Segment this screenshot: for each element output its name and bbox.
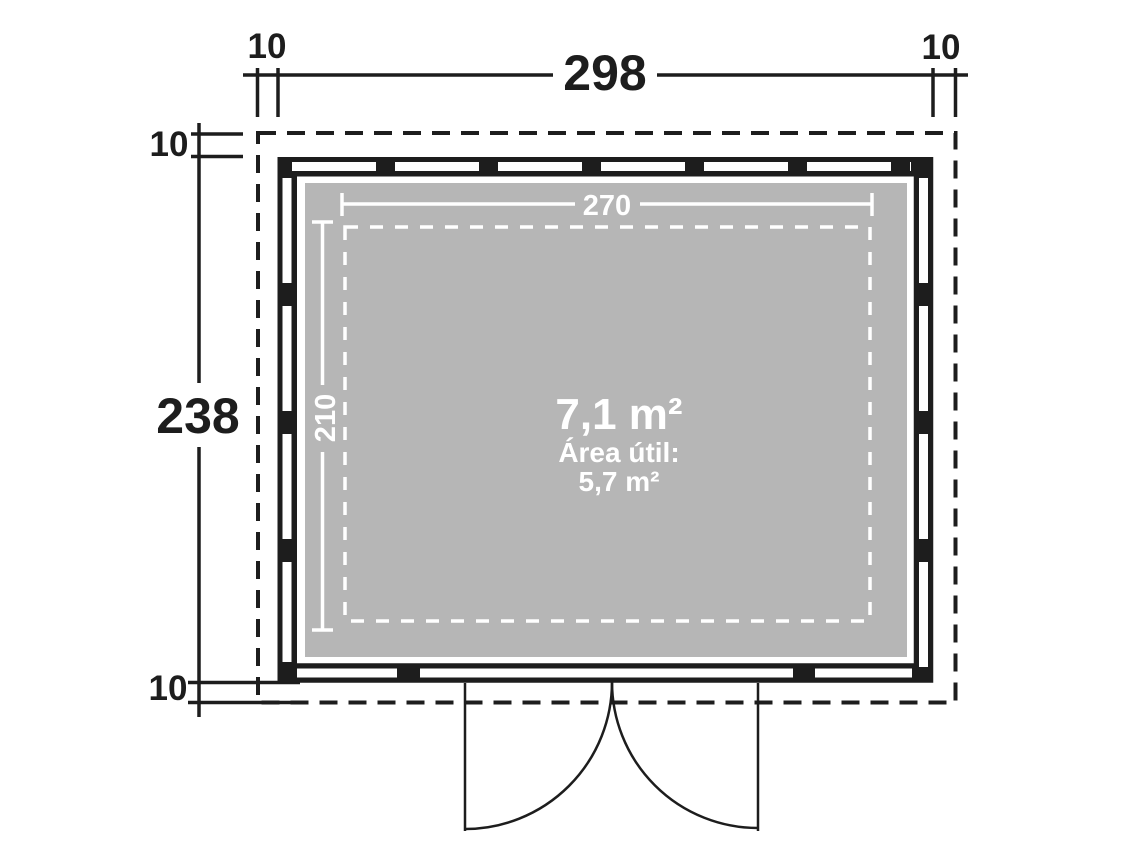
net-area-value: 5,7 m² — [579, 466, 660, 497]
floor-plan-canvas: 298 10 10 238 10 10 270 — [0, 0, 1140, 855]
overhang-left-bottom-label: 10 — [149, 669, 188, 708]
overall-width-label: 298 — [563, 45, 646, 101]
floor-plan-diagram: 298 10 10 238 10 10 270 — [0, 0, 1140, 855]
net-area-caption: Área útil: — [558, 437, 679, 468]
interior-width-label: 270 — [583, 190, 631, 222]
interior-depth-label: 210 — [310, 394, 342, 442]
overall-depth-label: 238 — [156, 388, 239, 444]
gross-area-label: 7,1 m² — [555, 390, 682, 439]
overhang-top-left-label: 10 — [248, 27, 287, 66]
overall-width-dimension: 298 10 10 — [243, 27, 968, 117]
overhang-left-top-label: 10 — [150, 125, 189, 164]
overhang-top-right-label: 10 — [922, 28, 961, 67]
overall-depth-dimension: 238 10 10 — [149, 123, 300, 717]
